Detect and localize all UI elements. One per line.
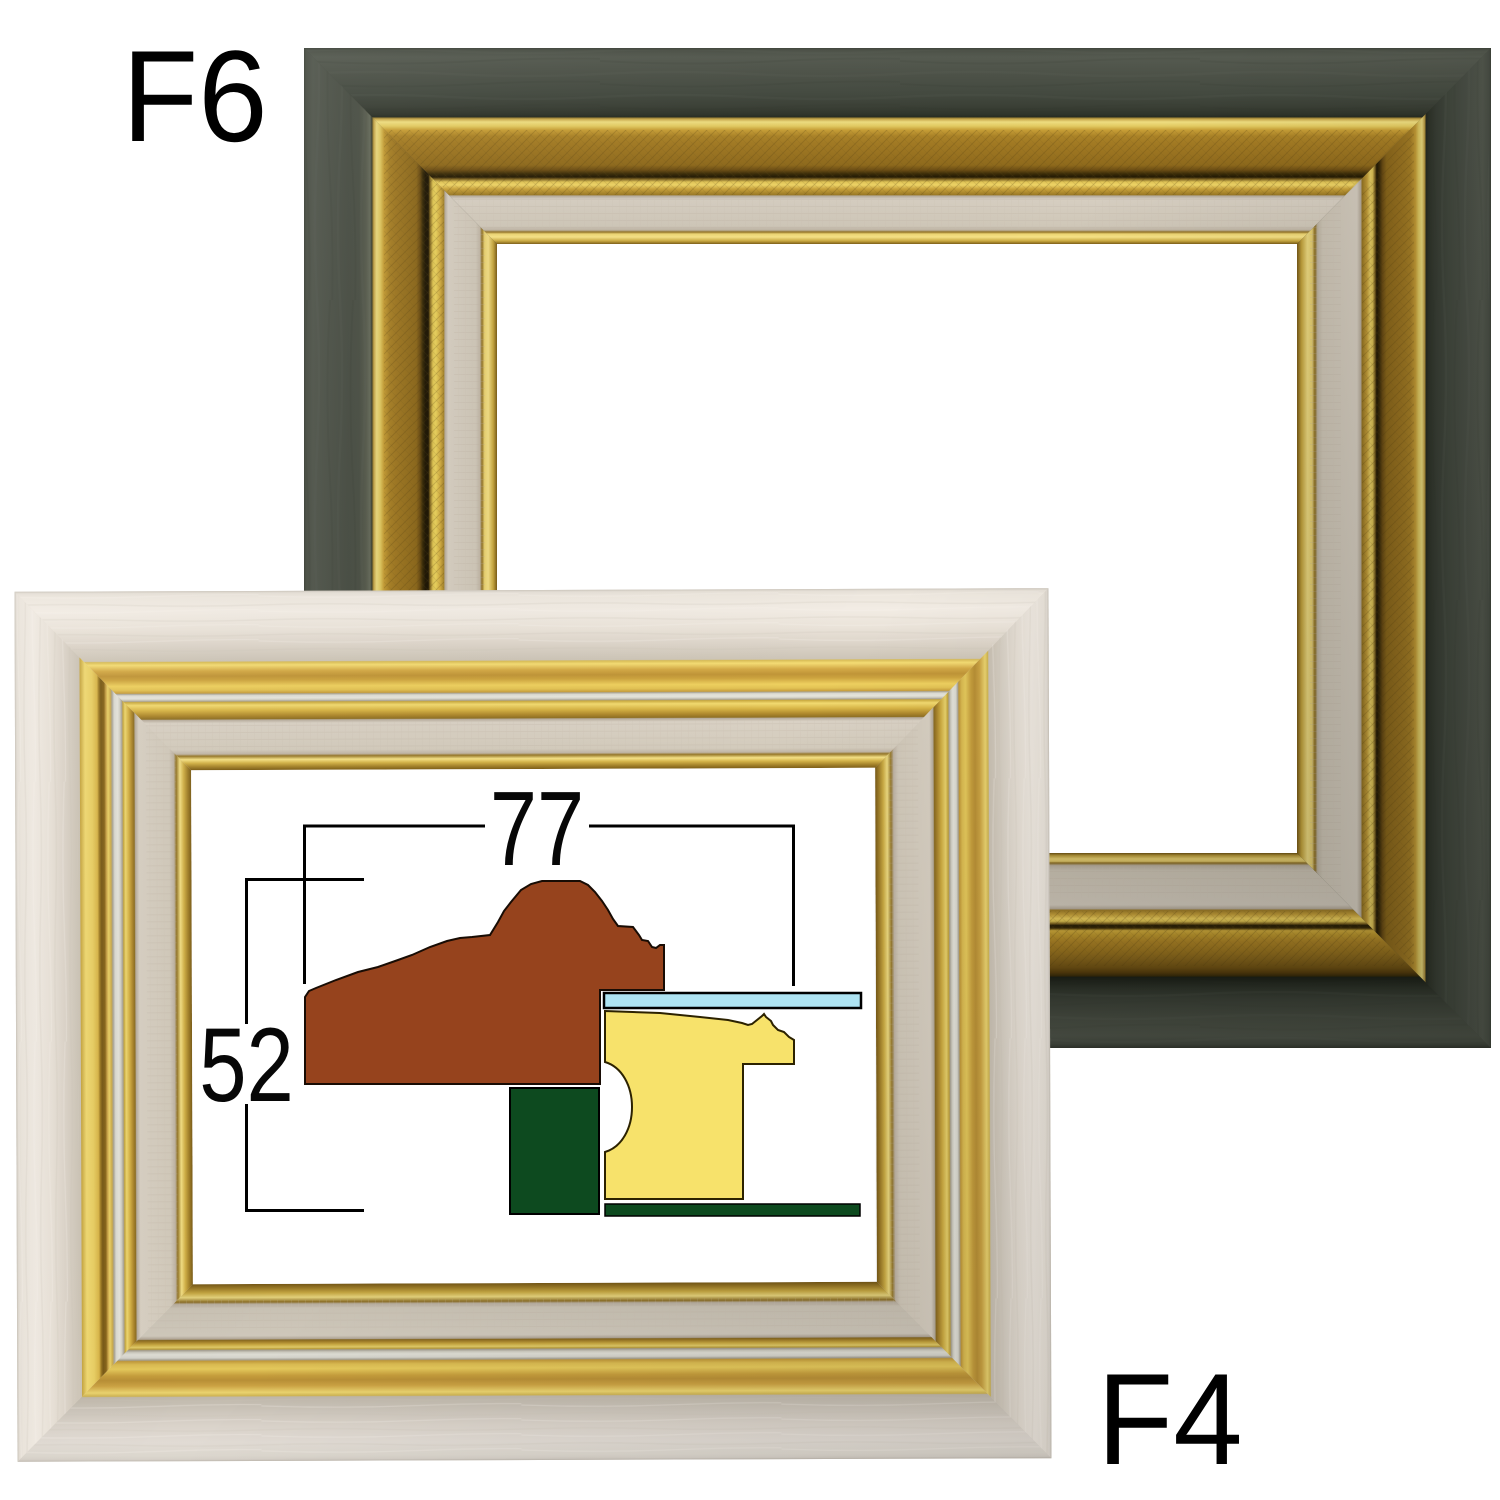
svg-text:77: 77 [490,770,584,888]
svg-text:52: 52 [199,1008,294,1124]
